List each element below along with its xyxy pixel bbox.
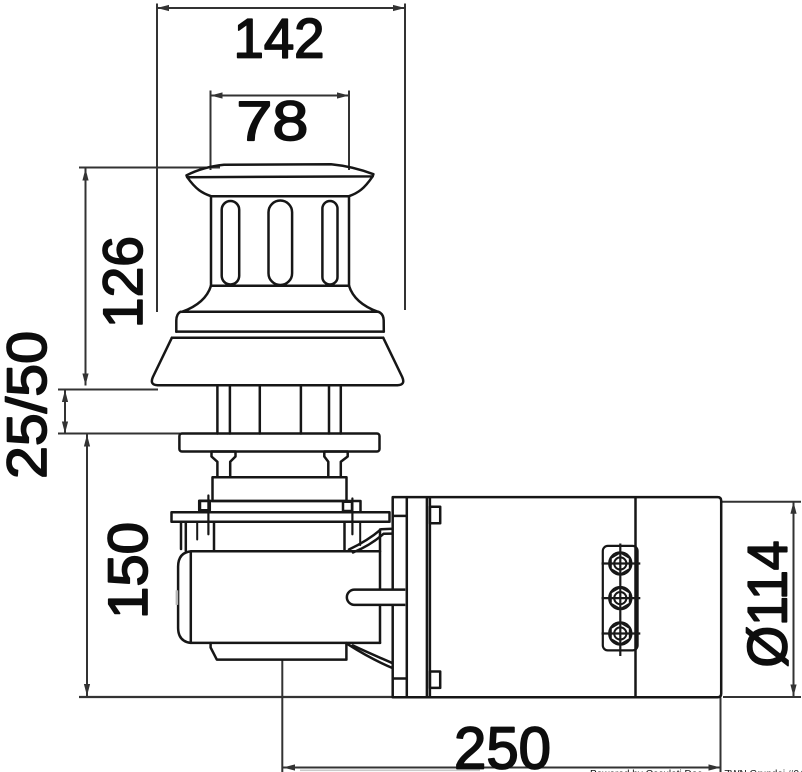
svg-text:150: 150 — [96, 522, 159, 619]
svg-text:Ø114: Ø114 — [736, 541, 799, 668]
svg-text:78: 78 — [236, 89, 308, 152]
svg-text:126: 126 — [91, 236, 154, 328]
svg-text:142: 142 — [234, 6, 325, 69]
svg-text:250: 250 — [454, 716, 551, 772]
svg-text:25/50: 25/50 — [0, 331, 58, 479]
